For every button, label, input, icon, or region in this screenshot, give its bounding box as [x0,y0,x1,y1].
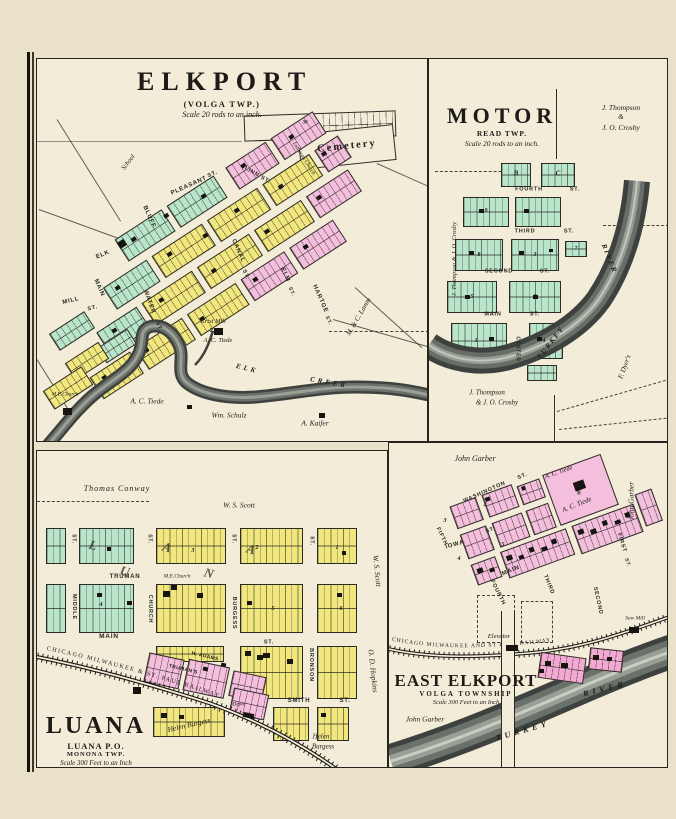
luana-map-panel: CHICAGO MILWAUKEE & ST. PAUL RAILWAY LUA… [36,450,388,768]
place-depot: Depot [232,702,245,708]
street-suffix: ST. [540,269,550,275]
building [539,669,544,673]
owner-scott: W. S. Scott [223,501,255,509]
block-number: 1 [336,545,339,551]
owner-tiede: A. C. Tiede [204,338,233,345]
building [533,295,538,299]
building [221,663,227,668]
building [107,547,111,551]
owner-schulz: Wm. Schulz [212,411,247,419]
elkport-scale: Scale 20 rods to an inch. [137,110,307,119]
street-suffix: ST. [264,640,274,646]
building [549,249,553,252]
building [179,715,184,719]
block-number: B [514,171,519,178]
book-spine-edge-inner [32,52,34,772]
street-suffix: ST. [530,312,540,318]
block-number: 3 [192,548,195,554]
building [163,591,170,597]
block-number: 4 [458,556,461,562]
building [247,601,252,605]
motor-township: READ TWP. [437,129,567,138]
luana-scale: Scale 300 Feet to an Inch [41,759,151,767]
motor-scale: Scale 20 rods to an inch. [437,139,567,148]
street-suffix: ST. [71,534,76,544]
street-smith: SMITH [288,698,311,704]
building [342,551,346,555]
street-suffix: ST. [564,229,574,235]
railway-name: CHICAGO MILWAUKEE AND ST PAUL RAILWAY [391,637,551,650]
block-number: 9 [485,208,488,214]
atlas-page: 18 [0,0,676,819]
luana-township: MONONA TWP. [41,751,151,758]
building [97,593,102,597]
east-elkport-township: VOLGA TOWNSHIP [388,690,545,698]
elkport-title: ELKPORT [137,67,307,97]
owner-burgess: Helen [313,734,330,741]
street-second: SECOND [485,269,513,275]
building [133,687,141,694]
owner-kaifer: A. Kaifer [301,419,329,427]
owner-thompson-crosby: & J. O. Crosby [476,400,518,407]
luana-po: LUANA P.O. [41,741,151,751]
block-number: 5 [272,606,275,612]
book-spine-edge [27,52,30,772]
building [537,337,542,341]
street-suffix: ST. [570,187,580,193]
town-block [588,647,624,672]
building [561,663,568,668]
building [524,209,529,213]
building [465,295,470,299]
street-suffix: ST. [147,534,152,544]
building [287,659,293,664]
owner-thompson-crosby: J. Thompson [581,103,661,112]
block-number: 5 [471,294,474,300]
block-number: 3 [444,518,447,524]
owner-tiede: A. C. Tiede [130,397,163,405]
building [127,601,132,605]
block-number: 6 [340,606,343,612]
east-elkport-title: EAST ELKPORT [388,671,545,691]
elkport-subtitle: (VOLGA TWP.) [137,99,307,109]
street-suffix: ST. [309,536,314,546]
building [506,645,518,651]
street-bronson: BRONSON [307,648,313,682]
street-third: THIRD [515,229,536,235]
building [321,713,326,717]
street-main: MAIN [99,634,119,641]
block-number: 7 [575,246,578,252]
building [519,251,524,255]
block-number: 2 [484,502,487,508]
building [197,593,203,598]
street-main: MAIN [484,312,501,318]
building [63,408,72,415]
street-burgess: BURGESS [230,597,236,630]
elkport-map-panel: ELKPORT (VOLGA TWP.) Scale 20 rods to an… [36,58,428,442]
block-number: 30 [303,121,308,126]
owner-thompson-crosby: J. Thompson [469,390,505,397]
owner-garber: John Garber [627,482,635,521]
street-center: CENTER [515,336,520,361]
building [607,657,612,661]
street-fourth: FOURTH [515,187,543,193]
block-number: 5 [502,542,505,548]
owner-conway: Thomas Conway [84,485,151,493]
owner-thompson-crosby: & [581,113,661,121]
building [187,405,192,409]
luana-title: LUANA [41,713,151,740]
owner-garber: John Garber [454,455,495,463]
building [214,328,223,335]
owner-thompson-crosby: J. O. Crosby [581,123,661,132]
building [545,661,551,666]
building [469,251,474,255]
building [203,667,209,672]
place-elevator: Elevator [488,634,510,641]
building [319,413,325,418]
place-me-church: M.E.Church [52,392,79,398]
east-elkport-map-panel: CHICAGO MILWAUKEE AND ST PAUL RAILWAY EA… [388,442,668,768]
building [629,627,639,633]
building [479,209,484,213]
block-number: 8 [478,252,481,258]
street-suffix: ST. [339,698,350,704]
east-elkport-scale: Scale 300 Feet to an Inch [388,699,545,706]
owner-thompson-crosby: J. Thompson & J. O. Crosby [452,222,459,296]
building [171,585,177,590]
owner-burgess: Burgess [312,744,334,751]
block-number: C [556,171,561,178]
building [489,337,494,341]
building [161,713,167,718]
owner-garber: John Garber [406,715,445,723]
motor-map-panel: MOTOR READ TWP. Scale 20 rods to an inch… [428,58,668,442]
building [245,651,251,656]
block-number: 6 [577,490,581,497]
motor-title: MOTOR [437,103,567,129]
street-suffix: ST. [231,534,236,544]
block-number: 3 [534,252,537,258]
place-grist-mill: Grist Mill [200,319,226,326]
building [263,653,270,658]
street-church: CHURCH [146,595,152,624]
block-number: 1 [475,338,478,344]
building [593,655,599,660]
place-saw-mill: Saw Mill [625,616,645,622]
building [337,593,342,597]
block-number: 4 [100,602,103,608]
block-number: 2 [256,545,259,551]
place-me-church: M.E.Church [164,574,191,580]
turkey-river-band [429,181,637,361]
street-middle: MIDDLE [70,594,76,620]
